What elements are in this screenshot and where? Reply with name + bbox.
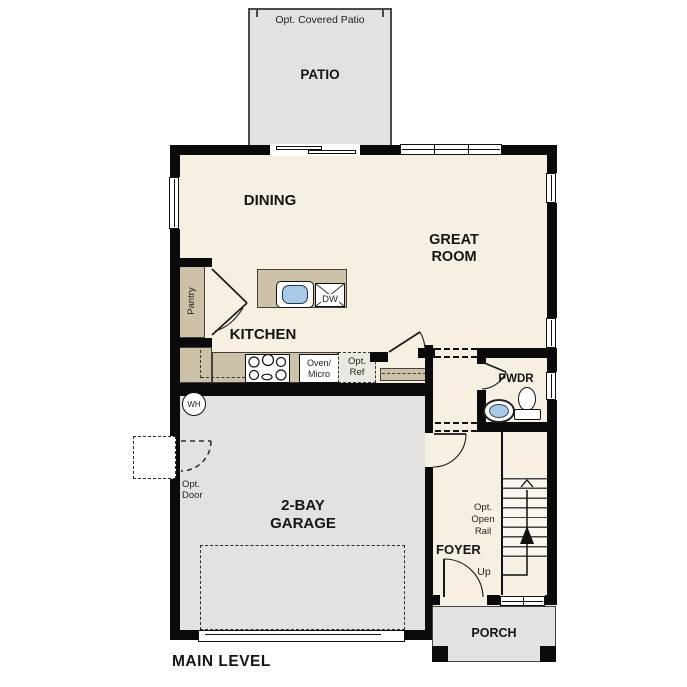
wall-garage-top [170,383,433,396]
oven-micro-cabinet: Oven/ Micro [299,354,339,383]
patio-label: PATIO [248,67,392,82]
garage-label: 2-BAY GARAGE [241,497,365,533]
toilet-tank-icon [514,409,541,420]
wall-right-2 [547,203,557,318]
window-pwdr [546,372,556,400]
wall-right-1 [547,145,557,173]
opt-open-rail-line1: Opt. [466,502,500,514]
pwdr-sink-basin-icon [489,404,509,418]
garage-door-swing-dashed-outline [200,545,405,630]
sliding-patio-door [270,144,360,156]
opt-open-rail-line3: Rail [466,526,500,538]
wall-top-left [170,145,272,155]
opt-ref-label-line2: Ref [339,367,375,378]
opt-open-rail-line2: Open [466,514,500,526]
garage-overhead-door [198,630,405,642]
pwdr-label: PWDR [487,373,545,385]
wall-front-right [545,595,557,605]
slider-panel-inner [308,150,356,154]
toilet-bowl-icon [518,387,536,411]
dishwasher-label-wrap: DW [315,289,345,307]
window-mullion [468,145,469,154]
great-room-label-line1: GREAT [404,232,504,249]
water-heater-label: WH [187,399,200,410]
patio-optional-label: Opt. Covered Patio [248,15,392,26]
wall-pantry-top [180,258,212,267]
wall-pwdr-left-upper [477,356,486,364]
kitchen-label: KITCHEN [198,326,328,343]
window-glazing [402,149,500,150]
great-room-label-line2: ROOM [404,249,504,266]
wall-front-mid [487,595,500,605]
garage-door-panel-line [205,634,381,636]
oven-micro-label-line1: Oven/ [300,358,338,369]
sink-basin-icon [282,285,308,304]
wall-top-mid [358,145,400,155]
stairs-up-label: Up [473,567,495,578]
window-greatroom-upper [546,173,556,203]
wall-garage-foyer-upper [425,345,433,433]
wall-greatroom-south-right [477,348,557,358]
wall-closet-stub [370,352,388,362]
window-glazing [551,320,552,346]
wall-left-upper [170,145,180,177]
porch-label: PORCH [432,626,556,640]
pantry-label: Pantry [186,280,198,322]
garage-label-line1: 2-BAY [241,497,365,515]
opt-door-label-line1: Opt. [182,479,224,490]
window-greatroom-triple [400,144,502,155]
great-room-label: GREAT ROOM [404,232,504,266]
wall-left-lower [170,229,180,640]
optional-door-label: Opt. Door [182,479,224,501]
wall-greatroom-south-left [418,348,435,358]
window-mullion [434,145,435,154]
opt-open-rail-label: Opt. Open Rail [466,502,500,538]
window-glazing [551,374,552,398]
garage-label-line2: GARAGE [241,515,365,533]
porch-post-left [432,646,448,662]
upper-cabinet-dashed-line-vertical [200,350,202,378]
wall-garage-bottom-right [405,630,433,640]
closet-rod-dashed-line [382,373,426,375]
water-heater: WH [182,392,206,416]
cased-opening-greatroom-hall [435,348,477,358]
dishwasher-label: DW [321,294,339,305]
window-glazing [174,179,175,227]
cased-opening-hall-foyer [435,422,477,432]
floor-plan: Opt. Covered Patio PATIO Oven/ Micro Opt… [0,0,687,687]
opt-door-label-line2: Door [182,490,224,501]
window-glazing [551,175,552,201]
window-foyer-front [500,596,545,606]
main-level-title: MAIN LEVEL [172,653,392,671]
porch-post-right [540,646,556,662]
window-dining [169,177,179,229]
oven-micro-label-line2: Micro [300,369,338,380]
stair-treads [503,478,547,558]
wall-garage-bottom-left [170,630,198,640]
wall-front-left [433,595,440,605]
optional-door-exterior-outline [133,436,176,479]
wall-hall-bottom [477,422,557,432]
window-mullion [523,597,524,605]
dining-label: DINING [210,192,330,209]
window-greatroom-lower [546,318,556,348]
cooktop [245,354,290,383]
upper-cabinet-dashed-line-horizontal [201,377,245,379]
foyer-label: FOYER [436,542,496,557]
